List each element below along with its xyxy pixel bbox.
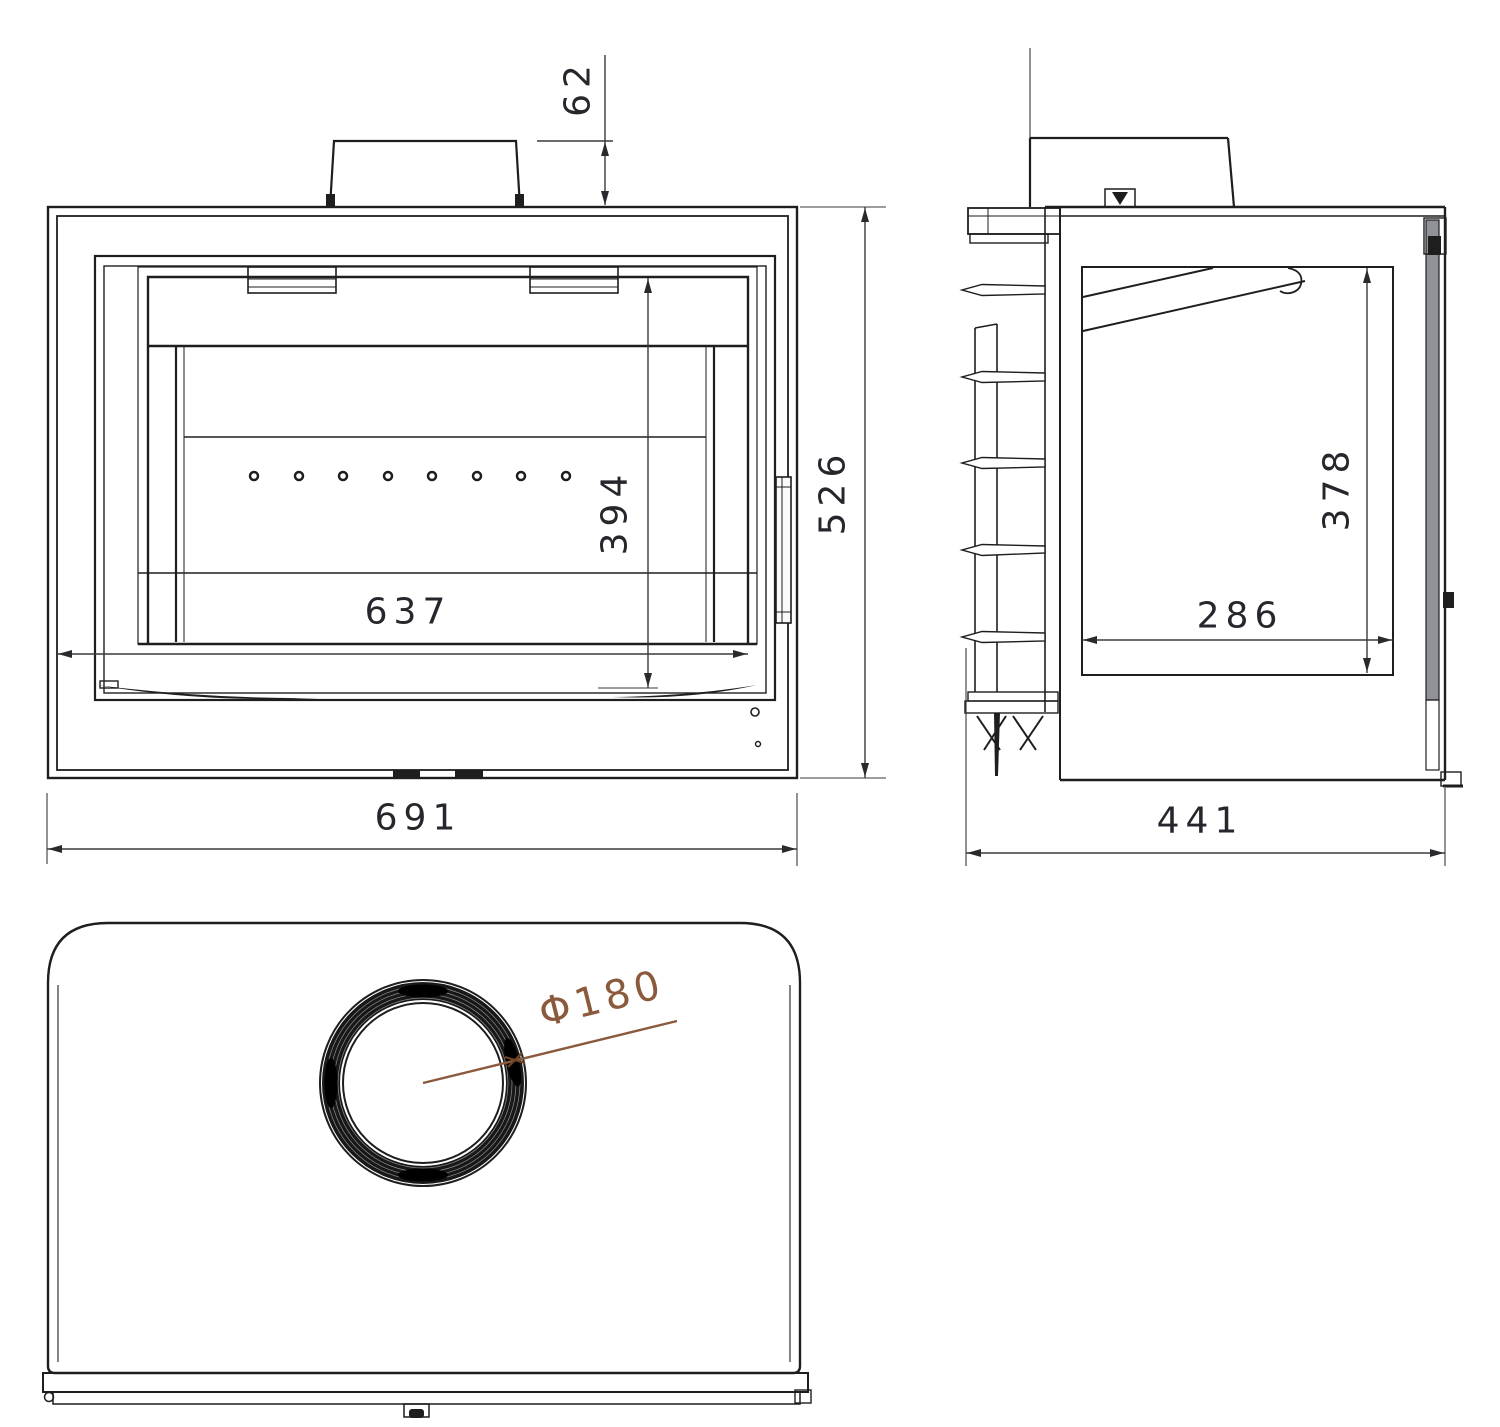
side-view: 378 286 441	[962, 48, 1463, 866]
dim-text-glass-height: 378	[1317, 445, 1358, 532]
dim-flue-offset: 62	[537, 55, 613, 205]
rear-mounting-bracket	[968, 208, 1060, 243]
latch-tab-left	[248, 267, 336, 293]
glass-frame	[148, 277, 748, 644]
door-lower-edge	[1426, 700, 1439, 770]
center-latch-tab	[404, 1404, 429, 1418]
bottom-tab-left	[393, 770, 420, 779]
latch-tab-right	[530, 267, 618, 293]
latch-pin-lower	[756, 742, 761, 747]
fireplace-technical-drawing: 62 526 691 637	[0, 0, 1500, 1427]
glass-section	[1426, 220, 1439, 700]
front-lower-strip	[53, 1392, 800, 1404]
dim-overall-height: 526	[800, 207, 886, 778]
dim-text-flue-diameter: Φ180	[534, 961, 669, 1037]
door-bottom-swoosh-right	[612, 685, 757, 698]
dim-text-overall-height: 526	[813, 449, 854, 536]
dim-text-overall-depth: 441	[1157, 801, 1244, 842]
dim-firebox-height: 394	[595, 278, 659, 688]
dim-overall-width: 691	[47, 793, 797, 866]
strip-end-pin-left	[45, 1393, 54, 1402]
latch-pin-upper	[751, 708, 759, 716]
dim-overall-depth: 441	[966, 648, 1445, 866]
drawing-page: 62 526 691 637	[0, 0, 1500, 1427]
dim-flue-diameter: Φ180	[423, 961, 677, 1083]
base-assembly	[965, 692, 1058, 776]
top-view: Φ180	[43, 923, 811, 1418]
front-trim-strip	[43, 1373, 808, 1392]
side-flue-collar	[1030, 138, 1234, 207]
dim-text-firebox-depth: 286	[1197, 596, 1284, 637]
glass-lip	[138, 267, 757, 644]
dim-text-firebox-width: 637	[365, 592, 452, 633]
air-hole-row	[250, 472, 570, 480]
dim-text-firebox-height: 394	[595, 469, 636, 556]
dim-glass-height: 378	[1317, 268, 1372, 673]
top-tab	[1105, 189, 1135, 207]
dim-firebox-width: 637	[57, 592, 748, 659]
front-inner-casing	[57, 216, 788, 770]
dim-firebox-depth: 286	[1082, 596, 1393, 645]
collar-foot-left	[326, 194, 335, 207]
collar-foot-right	[515, 194, 524, 207]
door-bottom-swoosh-left	[96, 685, 318, 699]
dim-text-overall-width: 691	[375, 798, 462, 839]
door-handle	[776, 477, 791, 623]
front-view: 62 526 691 637	[47, 55, 886, 866]
front-flue-collar	[330, 141, 520, 207]
dim-text-flue-offset: 62	[558, 59, 599, 117]
door-latch	[1443, 592, 1454, 608]
bottom-tab-right	[455, 770, 483, 779]
baffle-plate	[1083, 268, 1305, 331]
